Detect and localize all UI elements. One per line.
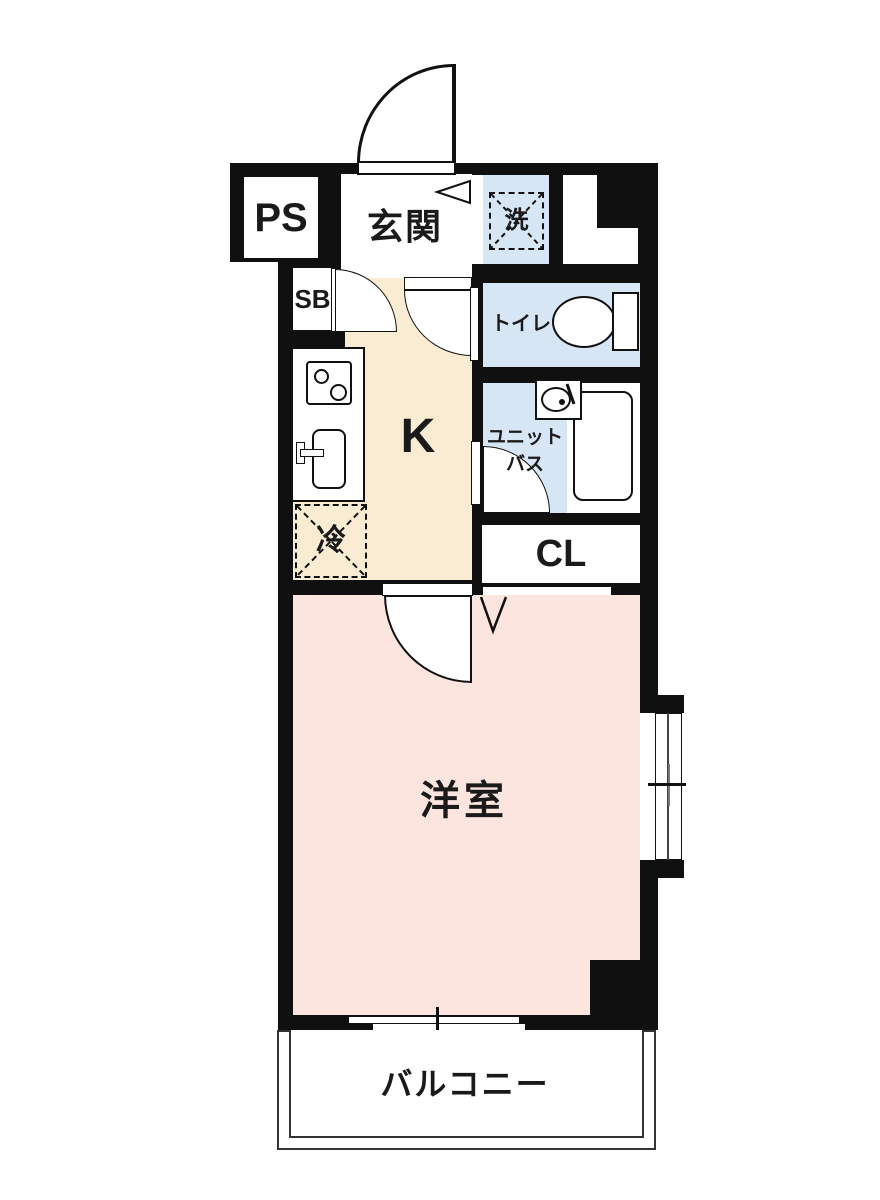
toilet-icon: [552, 296, 616, 348]
washbasin-bowl-icon: [541, 387, 571, 412]
corner-pillar: [590, 960, 658, 1030]
closet-label: CL: [482, 525, 640, 583]
bay-window-stub-bottom: [640, 860, 684, 878]
unit-bath-label-line1: ユニット: [484, 425, 566, 449]
refrigerator-label: 冷: [295, 504, 367, 578]
bay-window-tick-h: [648, 783, 686, 786]
kitchen-label: K: [388, 408, 448, 466]
unit-bath-label-line2: バス: [498, 452, 552, 476]
shoebox-label: SB: [293, 268, 332, 330]
floor-plan: 玄関 PS SB トイレ ユニット バス CL 洋室: [0, 0, 880, 1200]
toilet-tank-icon: [612, 292, 639, 351]
entrance-label: 玄関: [345, 203, 465, 251]
ps-label: PS: [244, 177, 318, 258]
toilet-door-strip: [470, 287, 479, 361]
kitchen-door-leaf: [404, 277, 472, 290]
bathtub-icon: [573, 391, 633, 501]
niche-horizontal: [563, 228, 638, 264]
entrance-door-arc: [357, 64, 454, 163]
western-room-label: 洋室: [384, 775, 544, 827]
stove-icon: [306, 361, 352, 405]
sink-faucet-h: [300, 449, 324, 457]
stove-burner-2: [330, 384, 347, 401]
balcony-label: バルコニー: [350, 1062, 580, 1106]
wall-stub-below-shoebox: [278, 330, 345, 347]
entrance-door-sill: [357, 161, 456, 175]
bay-window-stub-top: [640, 695, 684, 713]
bath-door-leaf: [471, 441, 481, 505]
washer-label: 洗: [489, 192, 544, 250]
entrance-side-gap: [472, 175, 483, 264]
stove-burner-1: [314, 369, 329, 384]
sink-icon: [312, 429, 346, 489]
toilet-label: トイレ: [488, 310, 554, 338]
